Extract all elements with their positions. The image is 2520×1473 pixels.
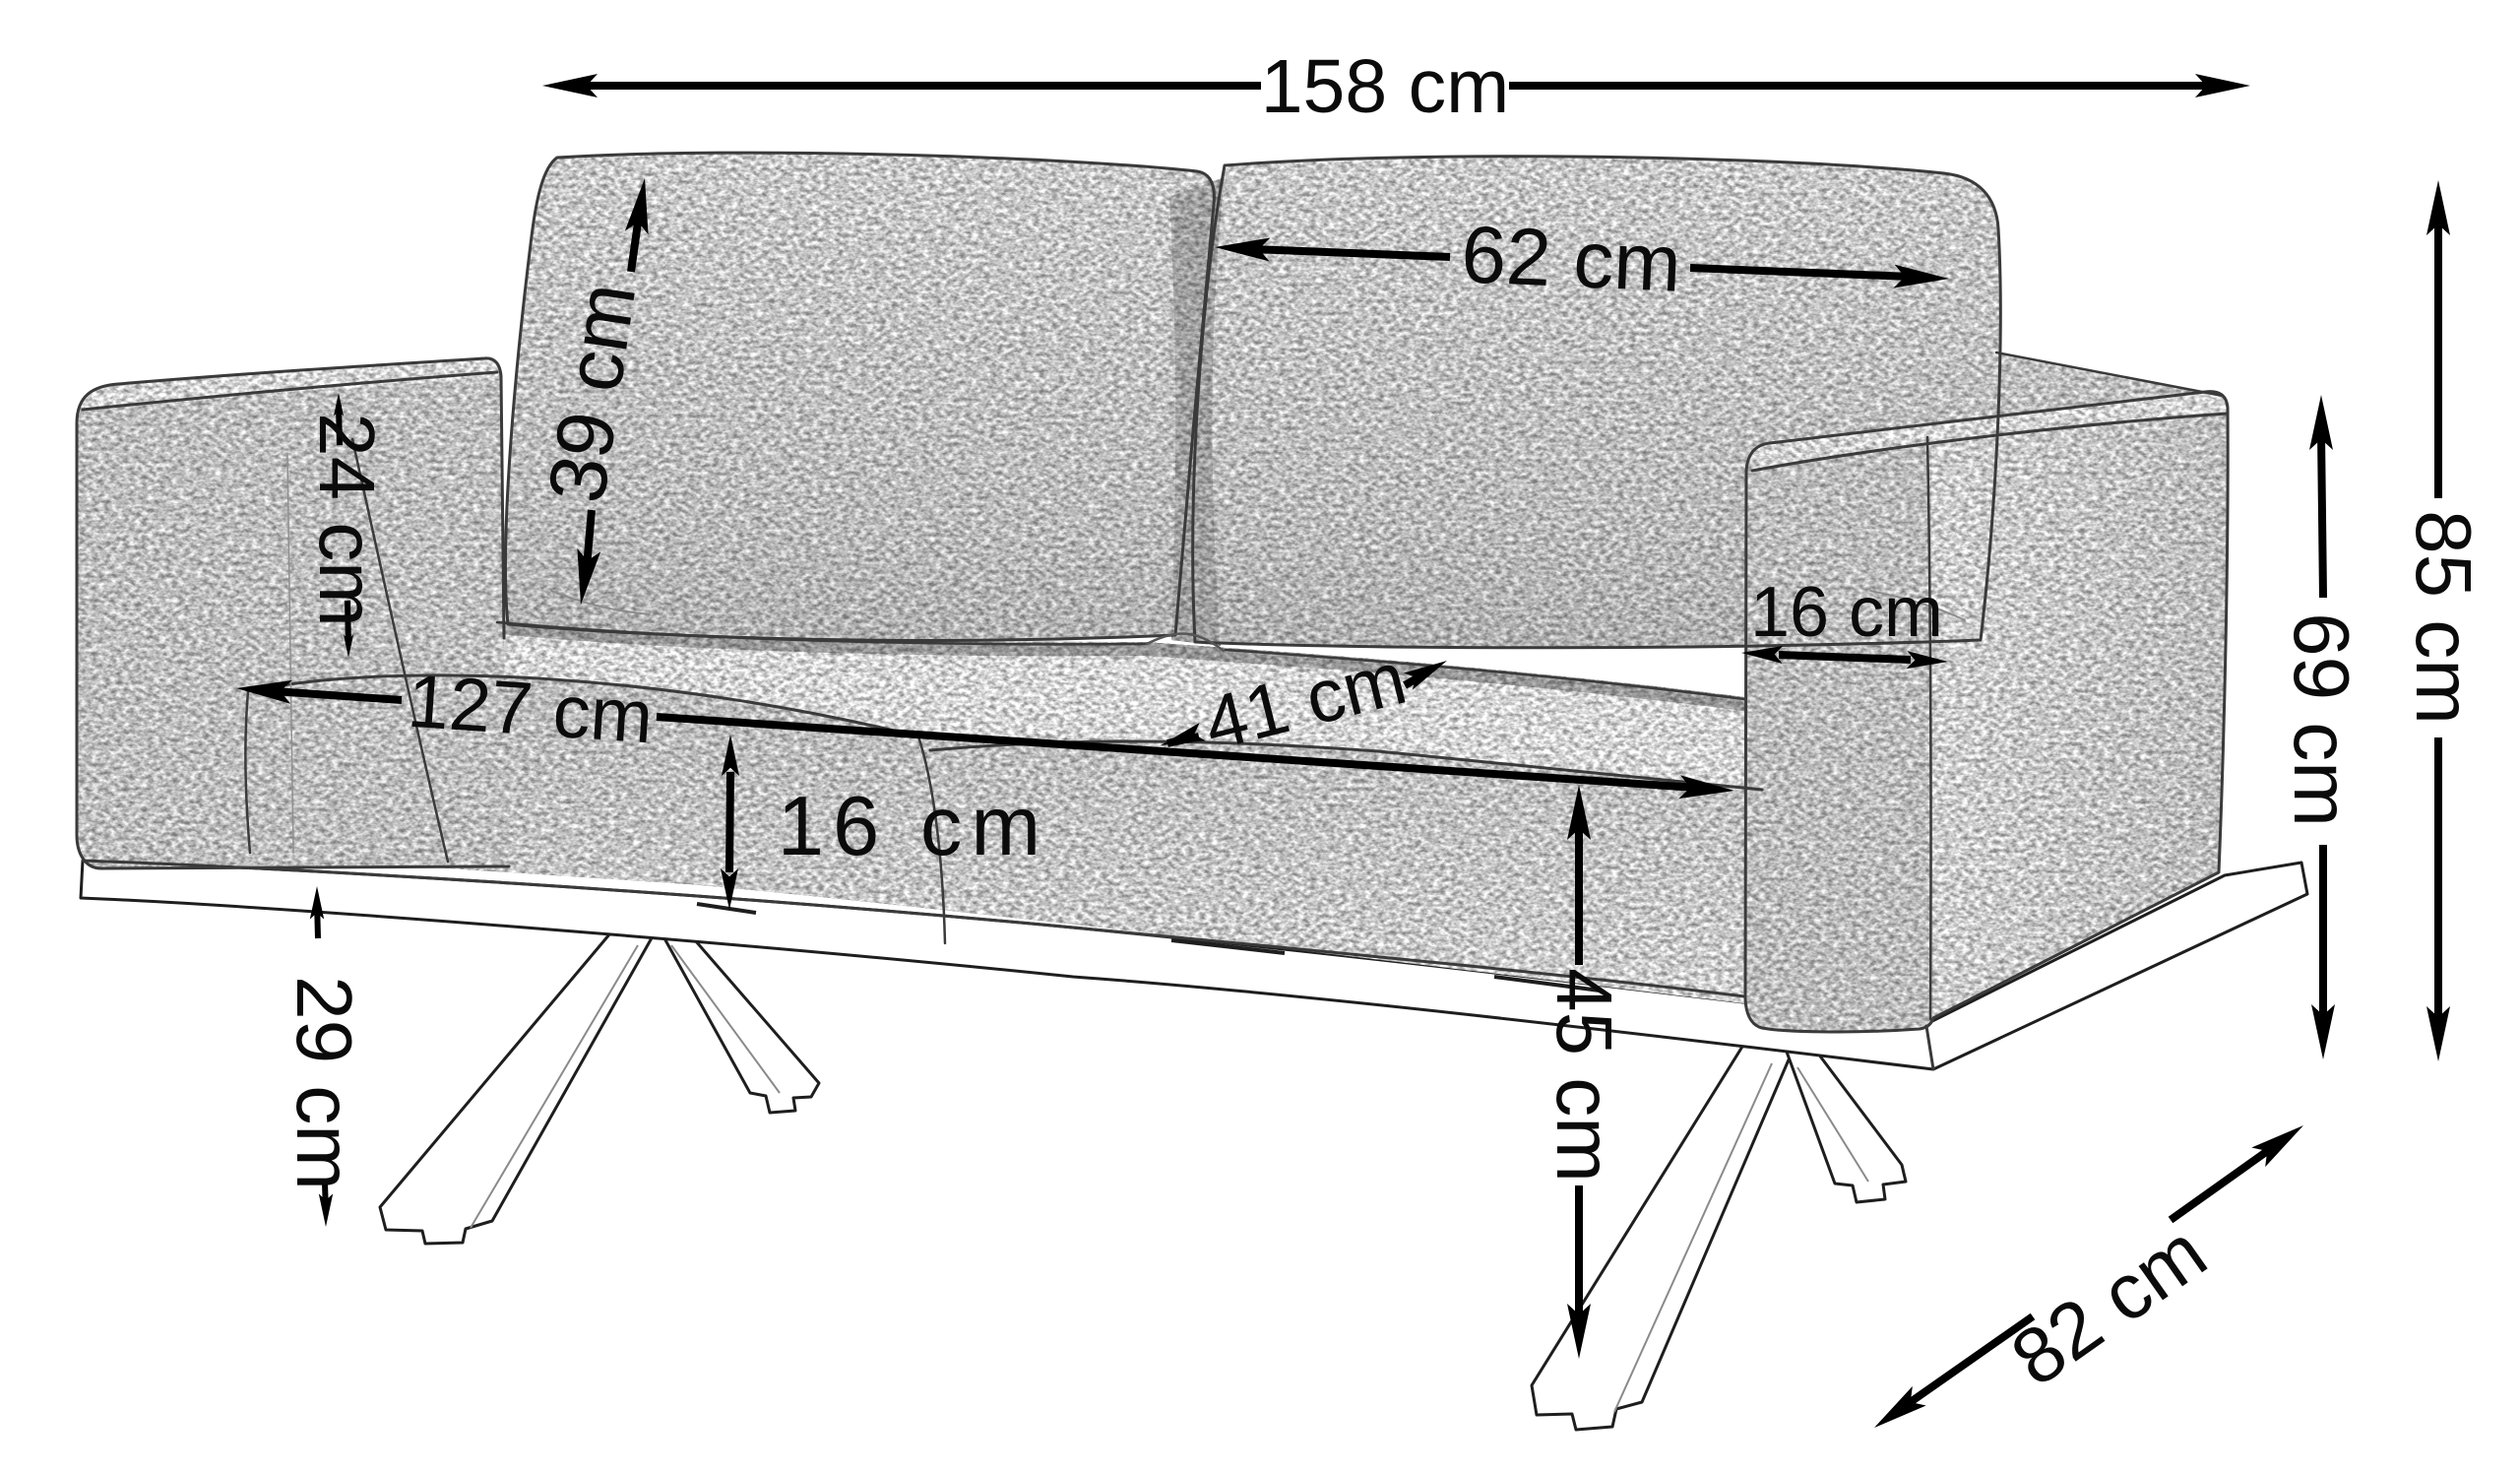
svg-text:29 cm: 29 cm: [281, 976, 368, 1190]
svg-text:127 cm: 127 cm: [406, 660, 656, 760]
svg-text:24 cm: 24 cm: [303, 413, 391, 627]
svg-text:62 cm: 62 cm: [1460, 210, 1683, 309]
svg-text:16 cm: 16 cm: [1750, 573, 1943, 652]
svg-text:85 cm: 85 cm: [2400, 510, 2488, 725]
svg-text:45 cm: 45 cm: [1541, 968, 1628, 1183]
svg-text:158 cm: 158 cm: [1261, 44, 1510, 129]
svg-text:69 cm: 69 cm: [2278, 612, 2365, 827]
svg-text:16 cm: 16 cm: [778, 780, 1049, 873]
